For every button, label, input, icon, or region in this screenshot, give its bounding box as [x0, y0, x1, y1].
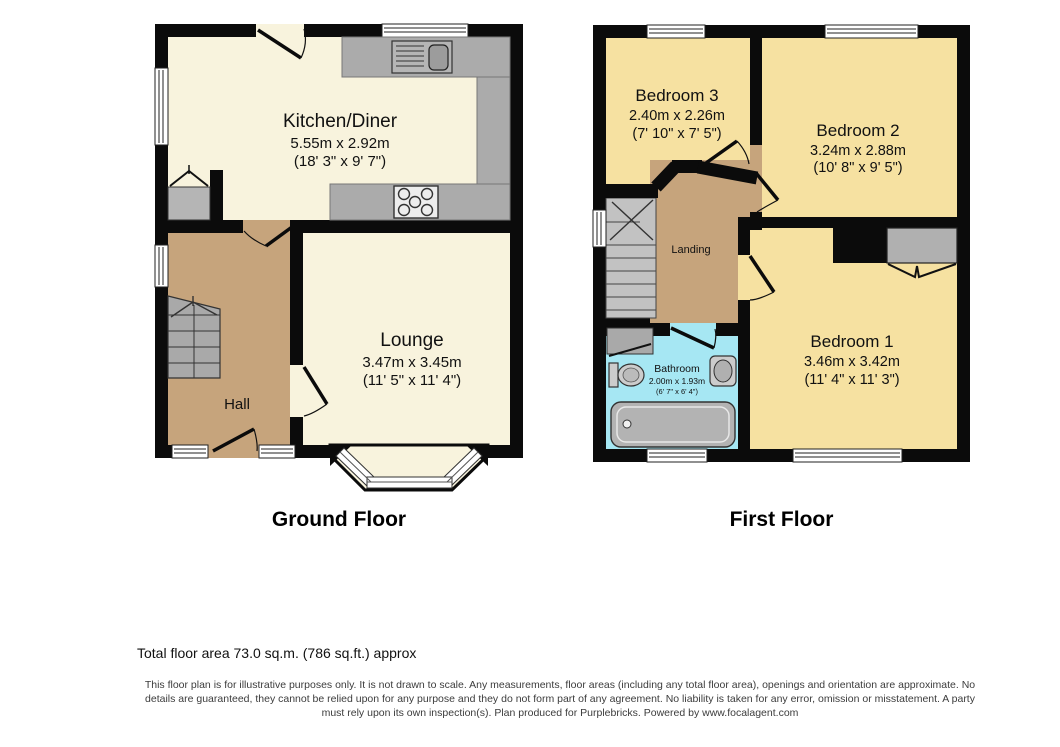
kitchen-sink	[392, 41, 452, 73]
bathroom-dim-imperial: (6' 7" x 6' 4")	[656, 387, 698, 396]
window-front-right	[259, 445, 295, 458]
window-landing	[593, 210, 606, 247]
kitchen-label: Kitchen/Diner	[283, 111, 398, 132]
total-floor-area: Total floor area 73.0 sq.m. (786 sq.ft.)…	[137, 645, 416, 661]
window-bedroom3	[647, 25, 705, 38]
hall-lounge-door-gap	[290, 365, 303, 417]
window-bedroom2	[825, 25, 918, 38]
wall-landing-bedroom1-lower	[738, 300, 750, 323]
chimney-breast	[833, 228, 887, 263]
lounge-label: Lounge	[380, 330, 443, 351]
ground-floor-plan: Kitchen/Diner 5.55m x 2.92m (18' 3" x 9'…	[155, 24, 523, 490]
window-front-left	[172, 445, 208, 458]
lounge-dim-imperial: (11' 5" x 11' 4")	[363, 372, 461, 389]
bay-window	[330, 445, 488, 490]
window-bedroom1	[793, 449, 902, 462]
bathroom-label: Bathroom	[654, 363, 700, 375]
landing-label: Landing	[671, 244, 710, 256]
toilet	[609, 363, 644, 387]
bedroom2-label: Bedroom 2	[816, 121, 899, 140]
cupboard-wall-stub	[210, 170, 223, 220]
bedroom2-dim-metric: 3.24m x 2.88m	[810, 143, 906, 159]
first-floor-title: First Floor	[593, 508, 970, 532]
wall-bedroom3-stairs	[593, 184, 658, 198]
wall-bathroom-top-right	[716, 323, 738, 336]
first-floor-plan: Bedroom 3 2.40m x 2.26m (7' 10" x 7' 5")…	[593, 25, 970, 462]
hall-label: Hall	[224, 396, 250, 413]
window-bathroom	[647, 449, 707, 462]
ground-floor-title: Ground Floor	[155, 508, 523, 532]
bedroom1-dim-metric: 3.46m x 3.42m	[804, 354, 900, 370]
airing-cupboard	[607, 328, 653, 356]
bathroom-dim-metric: 2.00m x 1.93m	[649, 376, 705, 386]
bedroom2-dim-imperial: (10' 8" x 9' 5")	[813, 160, 902, 176]
wall-bedroom2-bedroom1	[738, 217, 957, 228]
disclaimer-text: This floor plan is for illustrative purp…	[135, 678, 985, 720]
floor-plan-page: Kitchen/Diner 5.55m x 2.92m (18' 3" x 9'…	[0, 0, 1060, 747]
window-left-hall	[155, 245, 168, 287]
ff-staircase	[606, 198, 656, 318]
floor-plan-svg: Kitchen/Diner 5.55m x 2.92m (18' 3" x 9'…	[0, 0, 1060, 747]
bedroom3-dim-metric: 2.40m x 2.26m	[629, 108, 725, 124]
bedroom3-dim-imperial: (7' 10" x 7' 5")	[632, 126, 721, 142]
hob	[394, 186, 438, 218]
kitchen-dim-imperial: (18' 3" x 9' 7")	[294, 153, 386, 170]
lounge-dim-metric: 3.47m x 3.45m	[362, 354, 461, 371]
gf-staircase	[168, 296, 220, 378]
basin	[710, 356, 736, 386]
bathtub	[611, 402, 735, 447]
bedroom1-dim-imperial: (11' 4" x 11' 3")	[804, 372, 899, 388]
wall-landing-bedroom1-upper	[738, 228, 750, 255]
wall-bedroom3-bedroom2	[750, 25, 762, 145]
bedroom-1-door-gap	[738, 255, 750, 300]
bedroom3-label: Bedroom 3	[635, 86, 718, 105]
kitchen-hall-door-gap	[243, 220, 290, 233]
window-left-kitchen	[155, 68, 168, 145]
bedroom1-label: Bedroom 1	[810, 332, 893, 351]
window-top-kitchen	[382, 24, 468, 37]
kitchen-dim-metric: 5.55m x 2.92m	[290, 135, 389, 152]
